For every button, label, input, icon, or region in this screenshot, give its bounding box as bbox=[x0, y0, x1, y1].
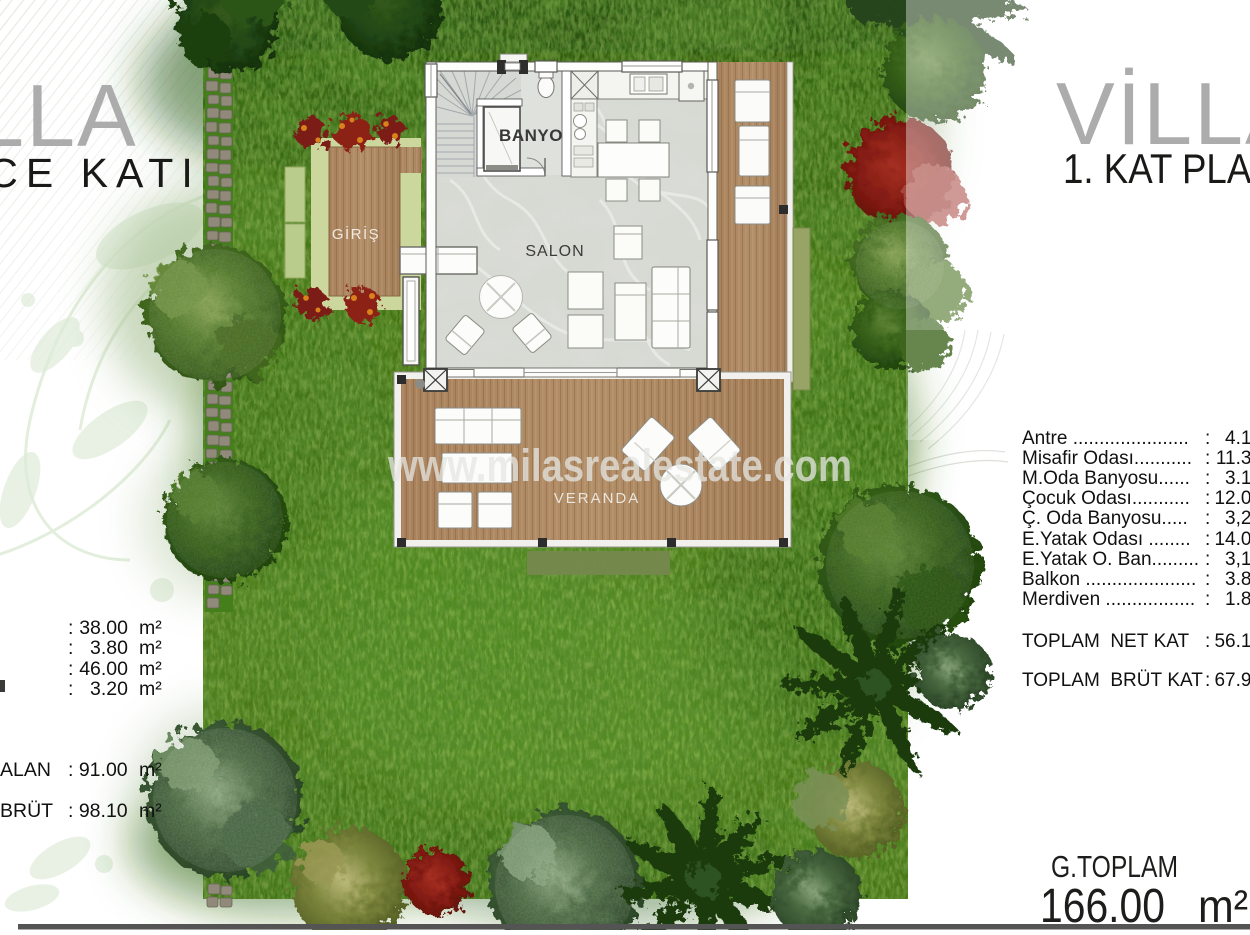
svg-text:14.00: 14.00 bbox=[1214, 529, 1250, 550]
svg-text:: 98.10: : 98.10 bbox=[68, 800, 128, 822]
svg-text:Antre ......................: Antre ...................... bbox=[1022, 428, 1189, 449]
svg-text:E.Yatak O. Ban.........: E.Yatak O. Ban......... bbox=[1022, 549, 1199, 570]
svg-text::: : bbox=[1205, 428, 1210, 449]
svg-text:SALON: SALON bbox=[525, 243, 584, 260]
svg-text::: : bbox=[1205, 549, 1210, 570]
svg-text:M.Oda Banyosu......: M.Oda Banyosu...... bbox=[1022, 468, 1190, 489]
svg-text::: : bbox=[1205, 468, 1210, 489]
svg-text::: : bbox=[1205, 670, 1210, 691]
svg-text:1.80: 1.80 bbox=[1225, 589, 1250, 610]
svg-text:3.10: 3.10 bbox=[1225, 468, 1250, 489]
svg-text:3.80: 3.80 bbox=[1225, 569, 1250, 590]
svg-text:Merdiven .................: Merdiven ................. bbox=[1022, 589, 1195, 610]
svg-text:m²: m² bbox=[139, 658, 162, 680]
svg-text:Misafir Odası...........: Misafir Odası........... bbox=[1022, 448, 1192, 469]
svg-text:m²: m² bbox=[1198, 880, 1248, 930]
svg-text::: : bbox=[1205, 508, 1210, 529]
svg-text:m²: m² bbox=[139, 678, 162, 700]
svg-text:67.90: 67.90 bbox=[1214, 670, 1250, 691]
svg-text:11.30: 11.30 bbox=[1216, 448, 1250, 469]
svg-text::: : bbox=[1205, 589, 1210, 610]
svg-text::: : bbox=[1205, 448, 1210, 469]
svg-text::: : bbox=[68, 637, 73, 659]
svg-text:1. KAT PLANI: 1. KAT PLANI bbox=[1063, 145, 1250, 192]
svg-text:4.10: 4.10 bbox=[1225, 428, 1250, 449]
svg-text:3.20: 3.20 bbox=[90, 678, 128, 700]
svg-text:G.TOPLAM: G.TOPLAM bbox=[1051, 849, 1178, 884]
svg-text:E.Yatak Odası ........: E.Yatak Odası ........ bbox=[1022, 529, 1191, 550]
svg-text:Balkon .....................: Balkon ..................... bbox=[1022, 569, 1196, 590]
svg-text::: : bbox=[1205, 529, 1210, 550]
svg-text:: 91.00: : 91.00 bbox=[68, 759, 128, 781]
svg-text:Ç. Oda Banyosu.....: Ç. Oda Banyosu..... bbox=[1022, 508, 1188, 529]
svg-text::: : bbox=[68, 617, 73, 639]
svg-text:BAHCE KATI: BAHCE KATI bbox=[0, 150, 201, 196]
svg-text:Çocuk Odası...........: Çocuk Odası........... bbox=[1022, 488, 1190, 509]
svg-text:3,10: 3,10 bbox=[1225, 549, 1250, 570]
svg-text::: : bbox=[68, 658, 73, 680]
svg-text:3.80: 3.80 bbox=[90, 637, 128, 659]
svg-text:GİRİŞ: GİRİŞ bbox=[332, 225, 380, 243]
svg-text:166.00: 166.00 bbox=[1040, 880, 1165, 930]
svg-text::: : bbox=[1205, 631, 1210, 652]
svg-text:m²: m² bbox=[139, 759, 162, 781]
svg-text::: : bbox=[1205, 569, 1210, 590]
svg-text:3,20: 3,20 bbox=[1225, 508, 1250, 529]
svg-text:TOPLAM NET KAT: TOPLAM NET KAT bbox=[1022, 631, 1190, 652]
svg-text:m²: m² bbox=[139, 800, 162, 822]
svg-text:VERANDA: VERANDA bbox=[554, 490, 641, 507]
svg-text:ALAN: ALAN bbox=[0, 759, 51, 781]
svg-text::: : bbox=[68, 678, 73, 700]
svg-text:46.00: 46.00 bbox=[79, 658, 128, 680]
svg-text:BANYO: BANYO bbox=[499, 126, 563, 145]
svg-text:www.milasrealestate.com: www.milasrealestate.com bbox=[387, 440, 852, 491]
svg-text:m²: m² bbox=[139, 617, 162, 639]
svg-text:m²: m² bbox=[139, 637, 162, 659]
svg-text:38.00: 38.00 bbox=[79, 617, 128, 639]
svg-text:TOPLAM BRÜT KAT: TOPLAM BRÜT KAT bbox=[1022, 670, 1203, 691]
svg-text:12.00: 12.00 bbox=[1214, 488, 1250, 509]
svg-text:56.10: 56.10 bbox=[1214, 631, 1250, 652]
svg-text:BRÜT: BRÜT bbox=[0, 800, 53, 822]
svg-text::: : bbox=[1205, 488, 1210, 509]
